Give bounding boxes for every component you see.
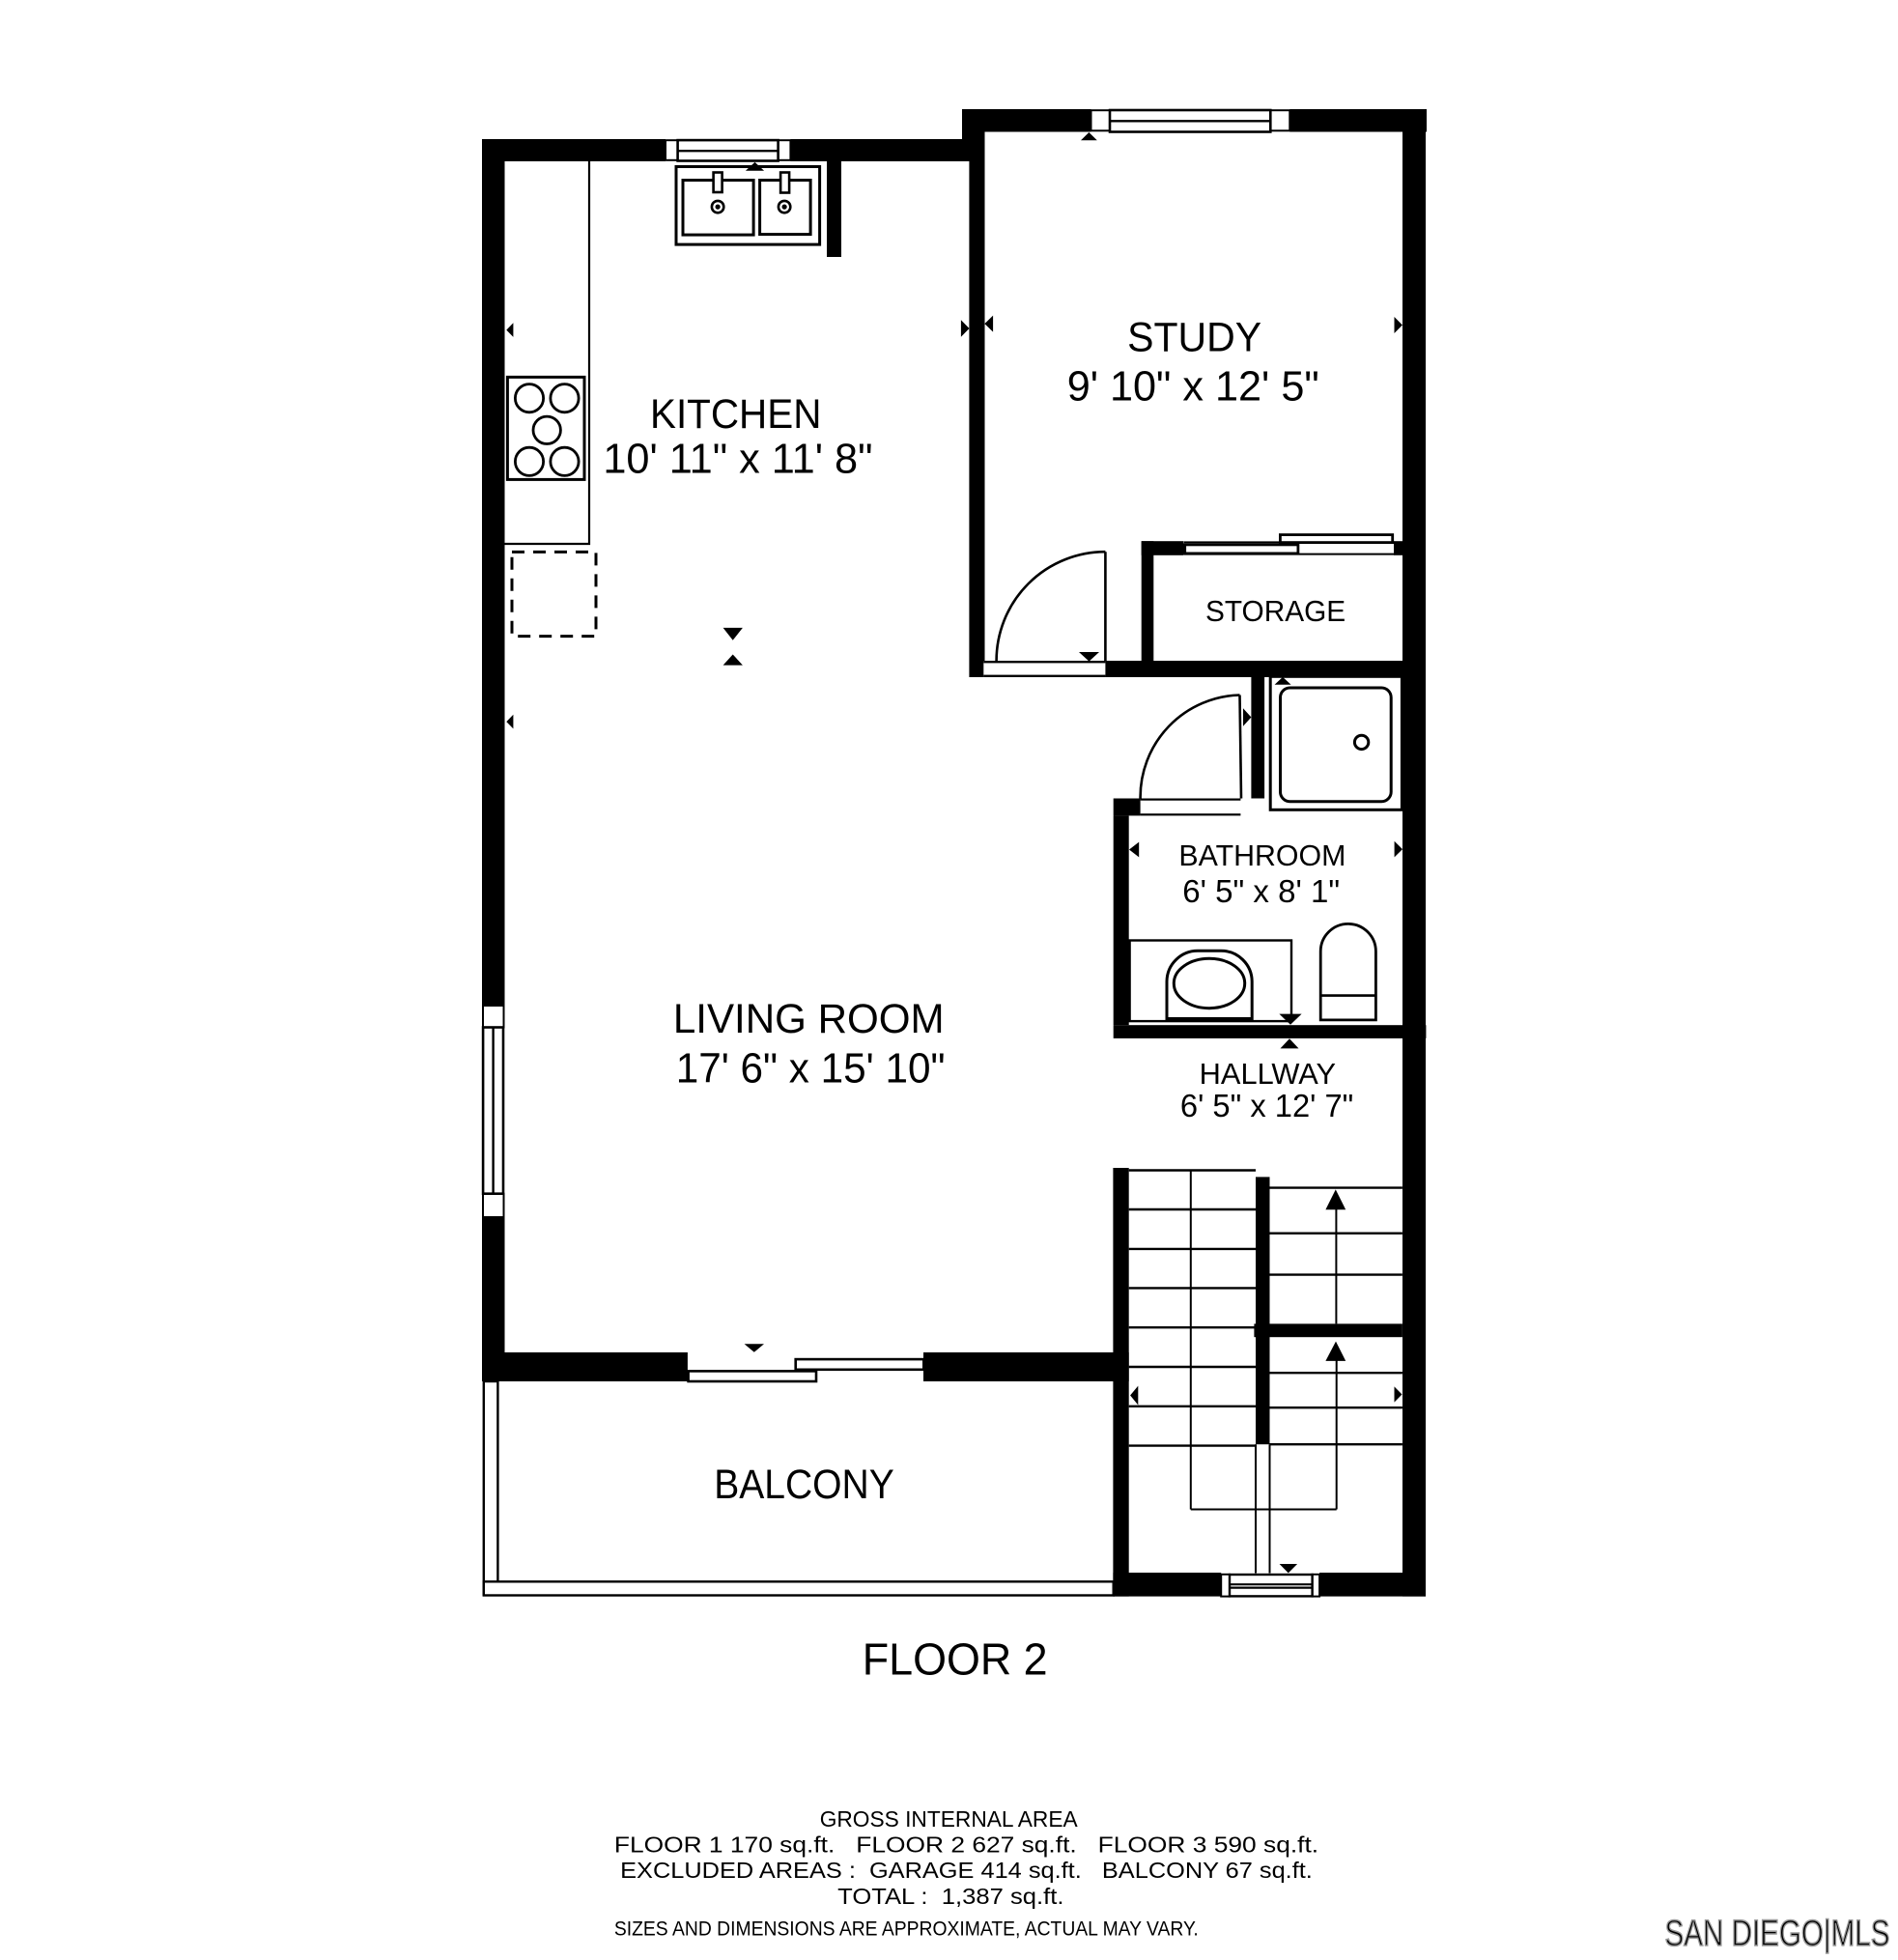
svg-text:6' 5" x 8' 1": 6' 5" x 8' 1"	[1182, 873, 1340, 909]
svg-text:SAN DIEGO|MLS: SAN DIEGO|MLS	[1665, 1914, 1890, 1954]
svg-text:STORAGE: STORAGE	[1205, 595, 1346, 628]
svg-text:STUDY: STUDY	[1127, 315, 1261, 360]
svg-text:FLOOR 2: FLOOR 2	[863, 1633, 1048, 1684]
svg-text:EXCLUDED AREAS : GARAGE 414 s: EXCLUDED AREAS : GARAGE 414 sq.ft. BALCO…	[620, 1858, 1313, 1883]
svg-text:KITCHEN: KITCHEN	[650, 392, 821, 438]
svg-text:TOTAL : 1,387 sq.ft.: TOTAL : 1,387 sq.ft.	[837, 1884, 1063, 1909]
svg-text:SIZES AND DIMENSIONS ARE APPRO: SIZES AND DIMENSIONS ARE APPROXIMATE, AC…	[614, 1917, 1199, 1941]
svg-text:9' 10" x 12' 5": 9' 10" x 12' 5"	[1067, 363, 1319, 411]
svg-text:10' 11" x 11' 8": 10' 11" x 11' 8"	[603, 436, 872, 483]
svg-text:LIVING ROOM: LIVING ROOM	[673, 997, 945, 1042]
svg-text:BALCONY: BALCONY	[714, 1463, 894, 1508]
svg-text:FLOOR 1 170 sq.ft. FLOOR 2 6: FLOOR 1 170 sq.ft. FLOOR 2 627 sq.ft. FL…	[614, 1832, 1318, 1858]
svg-text:HALLWAY: HALLWAY	[1200, 1058, 1336, 1091]
svg-text:BATHROOM: BATHROOM	[1178, 839, 1346, 872]
svg-text:GROSS INTERNAL AREA: GROSS INTERNAL AREA	[820, 1806, 1078, 1832]
svg-text:17' 6" x 15' 10": 17' 6" x 15' 10"	[676, 1045, 946, 1093]
svg-text:6' 5" x 12' 7": 6' 5" x 12' 7"	[1180, 1088, 1353, 1123]
